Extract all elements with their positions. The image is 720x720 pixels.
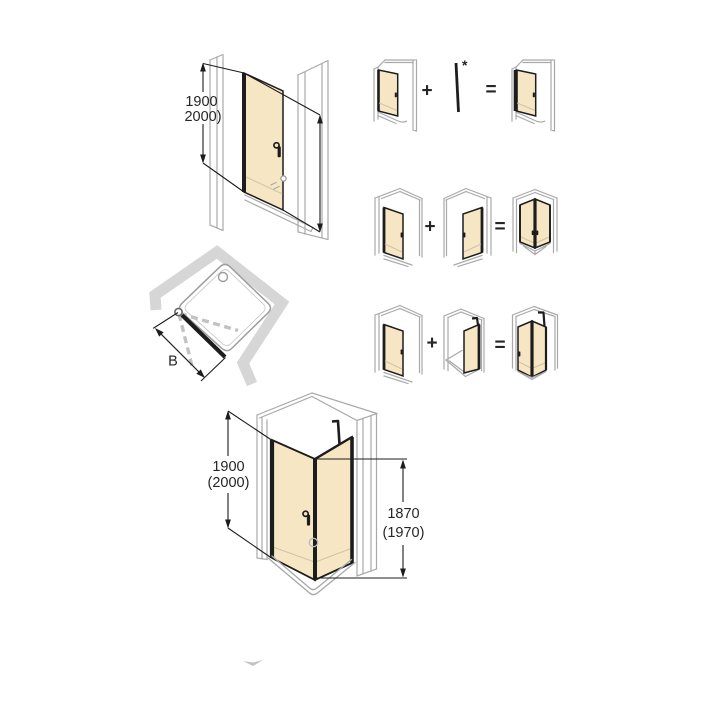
plus-operator: + xyxy=(421,81,432,102)
corner-entry-icon xyxy=(513,190,557,255)
corner-glass xyxy=(272,421,352,580)
niche-door-diagram: 1900 2000) xyxy=(163,45,358,250)
arrow-up-icon xyxy=(400,460,406,469)
door-handle-icon xyxy=(278,146,281,157)
watermark-mark xyxy=(240,656,270,674)
catalog-diagram-page: 1900 2000) B + * = + = xyxy=(0,0,720,720)
height-dimension-label-line2: (2000) xyxy=(208,475,250,491)
glass-height-dimension-label-line1: 1870 xyxy=(387,506,419,522)
arrow-down-icon xyxy=(400,569,406,578)
equals-operator: = xyxy=(485,80,496,101)
arrow-down-icon xyxy=(225,520,231,529)
door-mirrored-icon xyxy=(444,189,491,267)
door-icon xyxy=(375,306,422,384)
height-dimension-label-line2: 2000) xyxy=(184,109,221,125)
corner-enclosure-diagram: 1900 (2000) 1870 (1970) xyxy=(195,390,430,610)
glass-height-dimension-label-line2: (1970) xyxy=(383,525,425,541)
combo-rows-corner: + = + = xyxy=(368,183,573,393)
drain-icon xyxy=(219,273,228,282)
niche-door xyxy=(244,73,286,210)
asterisk-note: * xyxy=(462,57,468,73)
combo-row-door-profile: + * = xyxy=(362,50,572,142)
height-dimension-label-line1: 1900 xyxy=(212,459,244,475)
support-bracket-icon xyxy=(332,421,340,444)
door-icon xyxy=(375,189,422,267)
plus-operator: + xyxy=(426,333,437,354)
door-pivot-icon xyxy=(281,176,286,181)
height-dimension-label-line1: 1900 xyxy=(185,94,217,110)
arrow-down-icon xyxy=(200,155,206,164)
hinge-point-icon xyxy=(175,308,182,315)
door-glass xyxy=(244,73,283,210)
equals-operator: = xyxy=(494,217,505,238)
door-icon xyxy=(374,60,417,131)
door-with-profile-icon xyxy=(512,60,555,131)
equals-operator: = xyxy=(494,335,505,356)
width-dimension-label: B xyxy=(168,354,178,370)
door-glass xyxy=(272,440,315,580)
plus-operator: + xyxy=(424,217,435,238)
plan-view-diagram: B xyxy=(130,247,295,397)
side-panel-icon xyxy=(444,309,484,377)
door-handle-icon xyxy=(307,515,310,526)
wall-profile-icon xyxy=(456,63,459,112)
door-side-panel-combo-icon xyxy=(513,307,558,380)
